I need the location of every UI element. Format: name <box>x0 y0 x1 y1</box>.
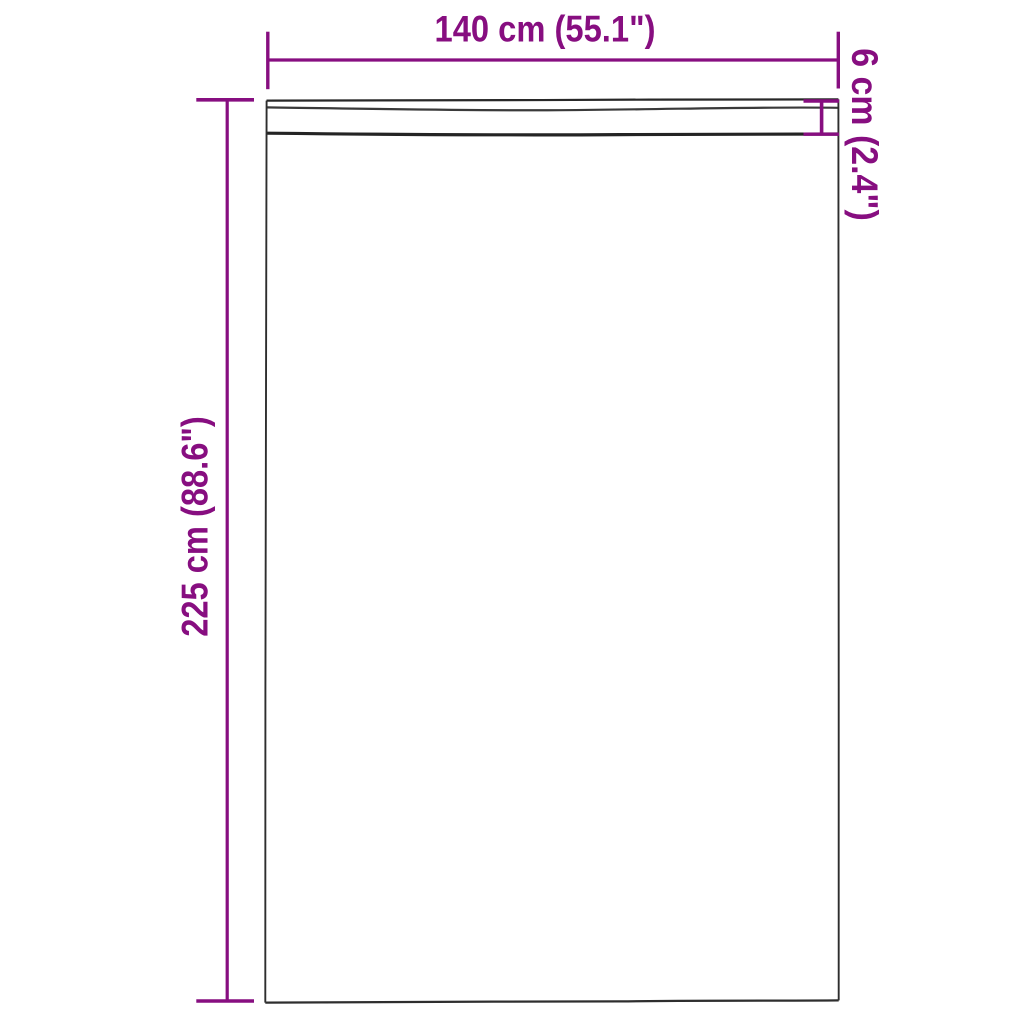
svg-text:6 cm (2.4"): 6 cm (2.4") <box>844 48 886 221</box>
svg-text:225 cm (88.6"): 225 cm (88.6") <box>174 416 216 637</box>
svg-text:140 cm (55.1"): 140 cm (55.1") <box>435 8 656 50</box>
